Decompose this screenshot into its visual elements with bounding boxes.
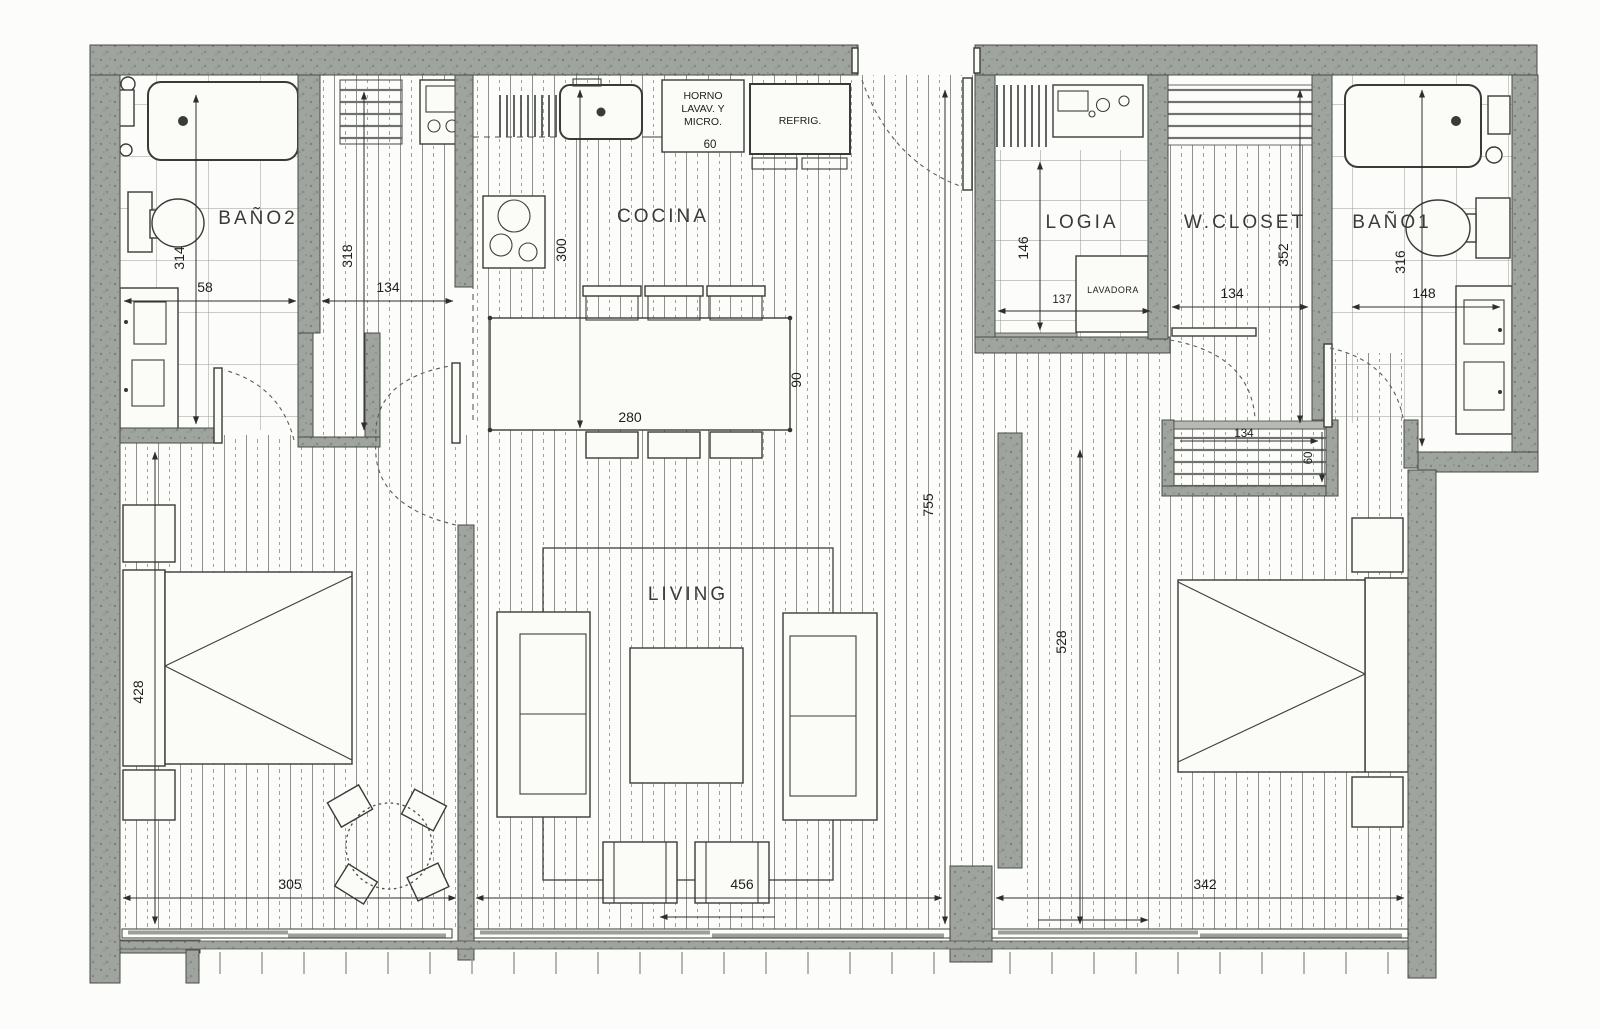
island-corner-dot	[788, 428, 793, 433]
slider-panel	[288, 934, 446, 938]
dim-island-depth: 90	[788, 372, 804, 388]
closet2-wall-right	[1326, 420, 1338, 496]
slider-panel	[128, 931, 288, 935]
stool-back	[707, 286, 765, 296]
dim-total-depth: 755	[920, 493, 936, 517]
dim-living-width: 456	[730, 876, 754, 892]
wall-stub	[365, 333, 380, 445]
bathtub-2	[148, 82, 298, 160]
faucet-dot	[1498, 328, 1502, 332]
island-corner-dot	[788, 316, 793, 321]
nightstand	[1352, 777, 1403, 827]
floor-plan: HORNO LAVAV. Y MICRO. 60 REFRIG.	[0, 0, 1600, 1029]
wcloset-shelves	[1168, 85, 1312, 145]
faucet-dot	[124, 320, 128, 324]
dim-wcloset-width: 134	[1220, 285, 1244, 301]
room-label-logia: LOGIA	[1045, 212, 1118, 233]
bathroom1-door-leaf	[1324, 344, 1332, 427]
slider-bay-bedroom2	[992, 929, 1408, 938]
bathtub2-drain	[178, 116, 188, 126]
dim-wcloset-height: 352	[1275, 243, 1291, 267]
room-label-living: LIVING	[648, 584, 728, 605]
oven-label-line1: HORNO	[683, 90, 722, 102]
bedroom1-door-leaf	[452, 363, 460, 443]
closet2-wall-bottom	[1162, 486, 1338, 496]
dim-island-width: 280	[618, 409, 642, 425]
bed2-mattress	[1178, 580, 1365, 772]
faucet-dot	[1498, 390, 1502, 394]
slider-panel	[998, 931, 1198, 935]
wall-kitchen-left	[455, 75, 473, 287]
dim-logia-width: 137	[1052, 294, 1071, 306]
wall-bedroom1-living	[458, 525, 474, 960]
dim-bath1-width: 148	[1412, 285, 1436, 301]
bed1-mattress	[165, 572, 352, 764]
dish-rack	[498, 95, 560, 137]
wall-logia-bottom	[975, 337, 1170, 353]
bathtub-1	[1345, 85, 1481, 167]
bathtub1-drain	[1451, 116, 1461, 126]
wall-right-top	[1512, 75, 1538, 470]
dim-bath1-height: 316	[1392, 250, 1408, 274]
dim-bedroom1-height: 428	[130, 680, 146, 704]
logia-shelf	[995, 85, 1051, 147]
wall-fixture-circle	[120, 144, 132, 156]
closet-shelves	[340, 80, 402, 144]
wall-living-bedroom2	[998, 433, 1022, 868]
dim-oven-width: 60	[704, 139, 717, 151]
wall-niche	[1488, 96, 1510, 134]
wall-stub	[298, 333, 313, 443]
nightstand	[1352, 518, 1403, 572]
stool-seat	[586, 432, 638, 458]
wall-top-right	[975, 45, 1537, 75]
dim-hall-width: 134	[376, 279, 400, 295]
island-corner-dot	[488, 316, 493, 321]
door-jamb-cap	[852, 48, 858, 73]
dim-bedroom1-width: 305	[278, 876, 302, 892]
wcloset-fixtures	[1168, 85, 1312, 145]
dim-logia-height: 146	[1015, 236, 1031, 260]
stool-seat	[710, 432, 762, 458]
dim-kitchen-height: 300	[553, 238, 569, 262]
stool-back	[583, 286, 641, 296]
bed1-headboard	[123, 570, 165, 766]
sink-drain	[597, 108, 606, 117]
toilet2-tank	[128, 192, 152, 252]
slider-panel	[1200, 934, 1402, 938]
door-jamb-cap	[974, 48, 980, 73]
slider-panel	[712, 934, 944, 938]
slider-panel	[480, 931, 710, 935]
oven-label-line3: MICRO.	[684, 116, 722, 128]
wall-logia-wcloset	[1148, 75, 1168, 339]
window-sill-band	[120, 941, 1408, 949]
dim-bedroom2-height: 528	[1053, 630, 1069, 654]
nightstand	[123, 770, 175, 820]
island-corner-dot	[488, 428, 493, 433]
island-stools-bottom	[586, 432, 762, 458]
bed2-headboard	[1365, 578, 1408, 772]
vanity2	[120, 288, 178, 440]
wall-logia-left	[975, 75, 995, 337]
slider-bay-bedroom1	[122, 929, 452, 938]
wall-right-step	[1418, 452, 1538, 472]
dim-closet2-depth: 60	[1303, 452, 1315, 465]
wall-fixture-circle	[121, 77, 135, 91]
nightstand	[123, 505, 175, 562]
wall-bath1-jamb	[1404, 420, 1418, 468]
coffee-table	[630, 648, 743, 783]
toilet1-tank	[1476, 198, 1510, 258]
room-label-cocina: COCINA	[617, 206, 709, 227]
bedroom2-door-leaf	[1172, 328, 1256, 336]
stool-seat	[648, 432, 700, 458]
wall-bath2-bottom	[120, 428, 220, 443]
balcony-corner-wall	[186, 950, 199, 983]
balcony-ticks	[220, 952, 1388, 974]
washing-machine-label: LAVADORA	[1087, 285, 1139, 295]
dim-hall-height: 318	[339, 244, 355, 268]
room-label-bano1: BAÑO1	[1352, 211, 1431, 233]
faucet-dot	[124, 388, 128, 392]
room-label-bano2: BAÑO2	[218, 207, 297, 229]
wall-bath2-kitchen	[298, 75, 320, 333]
wall-left	[90, 75, 120, 983]
entrance-door-leaf	[963, 78, 972, 190]
dim-bath2-width: 58	[197, 279, 213, 295]
refrigerator-label: REFRIG.	[779, 115, 822, 127]
dim-bedroom2-width: 342	[1193, 876, 1217, 892]
room-label-wcloset: W.CLOSET	[1184, 212, 1306, 233]
dim-closet2-width: 134	[1234, 428, 1254, 440]
dim-bath2-height: 314	[171, 246, 187, 270]
closet2-wall-left	[1162, 420, 1174, 496]
stool-back	[645, 286, 703, 296]
slider-bay-living	[474, 929, 950, 938]
wall-fixture-circle	[1486, 147, 1502, 163]
wall-right-bottom	[1408, 470, 1436, 978]
oven-label-line2: LAVAV. Y	[681, 103, 724, 115]
floor-plan-drawing: HORNO LAVAV. Y MICRO. 60 REFRIG.	[0, 0, 1600, 1029]
wall-stub-bottom	[298, 437, 380, 447]
bathroom2-door-leaf	[214, 368, 222, 443]
wall-top-left	[90, 45, 858, 75]
wcloset-wood-floor	[1168, 145, 1312, 420]
